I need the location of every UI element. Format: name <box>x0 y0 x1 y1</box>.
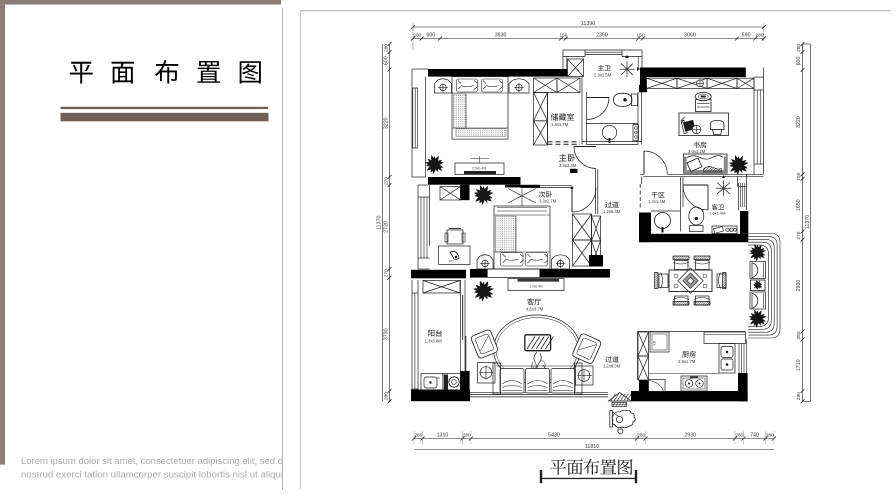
svg-text:BX: BX <box>652 341 656 346</box>
svg-text:280: 280 <box>637 433 645 439</box>
svg-text:11370: 11370 <box>377 215 383 229</box>
svg-text:150: 150 <box>636 33 644 39</box>
svg-text:600: 600 <box>384 56 390 65</box>
svg-text:2350: 2350 <box>596 33 608 39</box>
svg-text:11390: 11390 <box>581 21 595 27</box>
svg-text:280: 280 <box>384 44 390 52</box>
svg-text:280: 280 <box>766 433 774 439</box>
svg-text:270: 270 <box>384 269 390 277</box>
svg-text:nostrud exerci tation ullamcor: nostrud exerci tation ullamcorper suscip… <box>21 470 283 481</box>
svg-text:11370: 11370 <box>805 215 811 229</box>
svg-text:1310: 1310 <box>437 433 449 439</box>
svg-text:1.6x1.4M: 1.6x1.4M <box>709 211 725 216</box>
svg-text:1650: 1650 <box>796 199 802 211</box>
svg-text:2930: 2930 <box>684 433 696 439</box>
svg-text:270: 270 <box>796 231 802 239</box>
svg-text:280: 280 <box>414 433 422 439</box>
svg-text:1.2x6.3M: 1.2x6.3M <box>603 364 621 369</box>
svg-text:280: 280 <box>463 433 471 439</box>
svg-text:1.2x6.3M: 1.2x6.3M <box>603 209 621 214</box>
svg-text:600: 600 <box>426 33 435 39</box>
svg-text:3.3x2.7M: 3.3x2.7M <box>539 199 557 204</box>
svg-text:2930: 2930 <box>796 280 802 292</box>
svg-text:2720: 2720 <box>384 221 390 233</box>
svg-text:2.0x0.4M: 2.0x0.4M <box>472 167 487 171</box>
svg-text:3220: 3220 <box>384 117 390 129</box>
svg-text:3730: 3730 <box>384 328 390 340</box>
svg-text:3.2x0.4M: 3.2x0.4M <box>529 285 542 289</box>
svg-text:PC: PC <box>449 260 454 264</box>
svg-text:1.2x1.4M: 1.2x1.4M <box>648 199 666 204</box>
svg-text:3930: 3930 <box>495 33 507 39</box>
svg-text:280: 280 <box>796 44 802 52</box>
svg-text:280: 280 <box>384 392 390 400</box>
svg-text:3220: 3220 <box>796 116 802 128</box>
svg-text:4.6x3.7M: 4.6x3.7M <box>526 307 544 312</box>
svg-text:3.9x3.3M: 3.9x3.3M <box>559 163 577 168</box>
svg-text:11810: 11810 <box>585 444 599 450</box>
svg-text:600: 600 <box>796 57 802 66</box>
svg-text:150: 150 <box>796 172 802 180</box>
svg-text:280: 280 <box>796 331 802 339</box>
svg-text:1.4x1.7M: 1.4x1.7M <box>551 122 569 127</box>
svg-text:590: 590 <box>742 33 751 39</box>
svg-text:280: 280 <box>796 392 802 400</box>
svg-text:1710: 1710 <box>796 359 802 371</box>
svg-text:5430: 5430 <box>548 433 560 439</box>
svg-text:3060: 3060 <box>684 33 696 39</box>
svg-text:280: 280 <box>413 33 421 39</box>
svg-text:2.9x1.7M: 2.9x1.7M <box>678 359 696 364</box>
svg-text:270: 270 <box>384 177 390 185</box>
svg-text:280: 280 <box>755 33 763 39</box>
svg-text:150: 150 <box>559 33 567 39</box>
svg-text:740: 740 <box>750 433 759 439</box>
svg-text:2.3x1.5M: 2.3x1.5M <box>594 73 612 78</box>
svg-text:1.3x3.6M: 1.3x3.6M <box>425 339 443 344</box>
svg-text:3.0x3.2M: 3.0x3.2M <box>688 149 706 154</box>
svg-text:280: 280 <box>735 433 743 439</box>
svg-text:Lorem ipsum dolor sit amet, co: Lorem ipsum dolor sit amet, consectetuer… <box>21 456 283 467</box>
